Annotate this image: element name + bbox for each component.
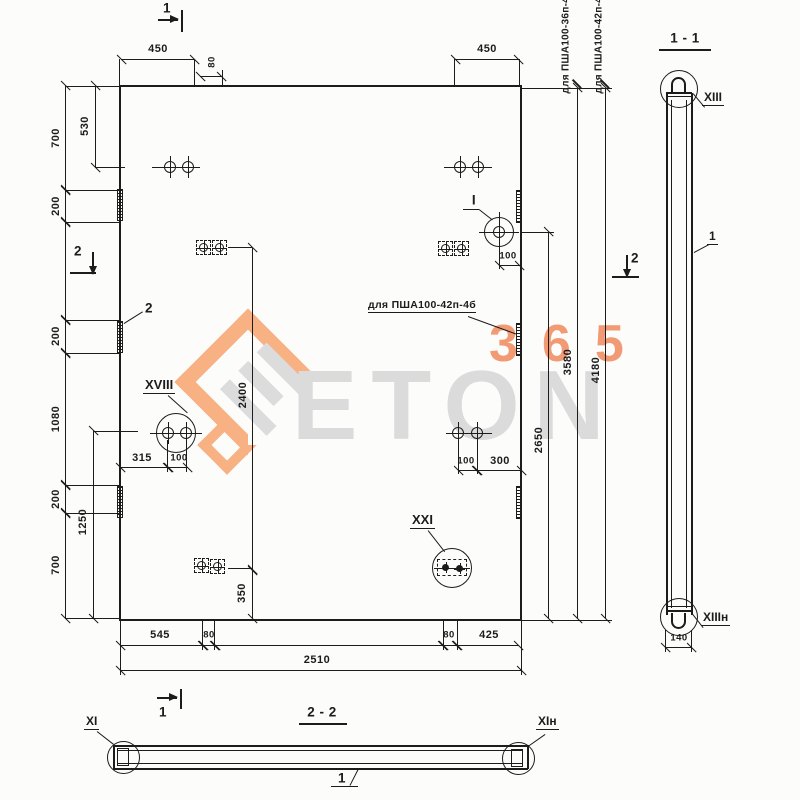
leader-line	[528, 734, 546, 747]
label-xi-n: XIн	[536, 714, 559, 730]
loop-anchor-left	[117, 748, 129, 766]
rebar-line	[118, 750, 523, 751]
leader-line	[97, 731, 114, 745]
blueprint-canvas: ETON 365 1 450 80 450 для ПША100-36п-4б …	[0, 0, 800, 800]
label-xi: XI	[84, 714, 99, 730]
leader-line	[349, 768, 359, 785]
panel-edge	[113, 768, 528, 770]
panel-edge	[113, 745, 528, 747]
section-2-2-title: 2 - 2	[307, 705, 337, 720]
section-2-2-view: 2 - 2 XI XIн 1	[0, 0, 800, 800]
label-underline	[331, 786, 358, 787]
loop-anchor-right	[511, 749, 523, 767]
rebar-line	[118, 763, 523, 764]
label-bar-1: 1	[338, 771, 346, 786]
title-underline	[299, 723, 347, 725]
